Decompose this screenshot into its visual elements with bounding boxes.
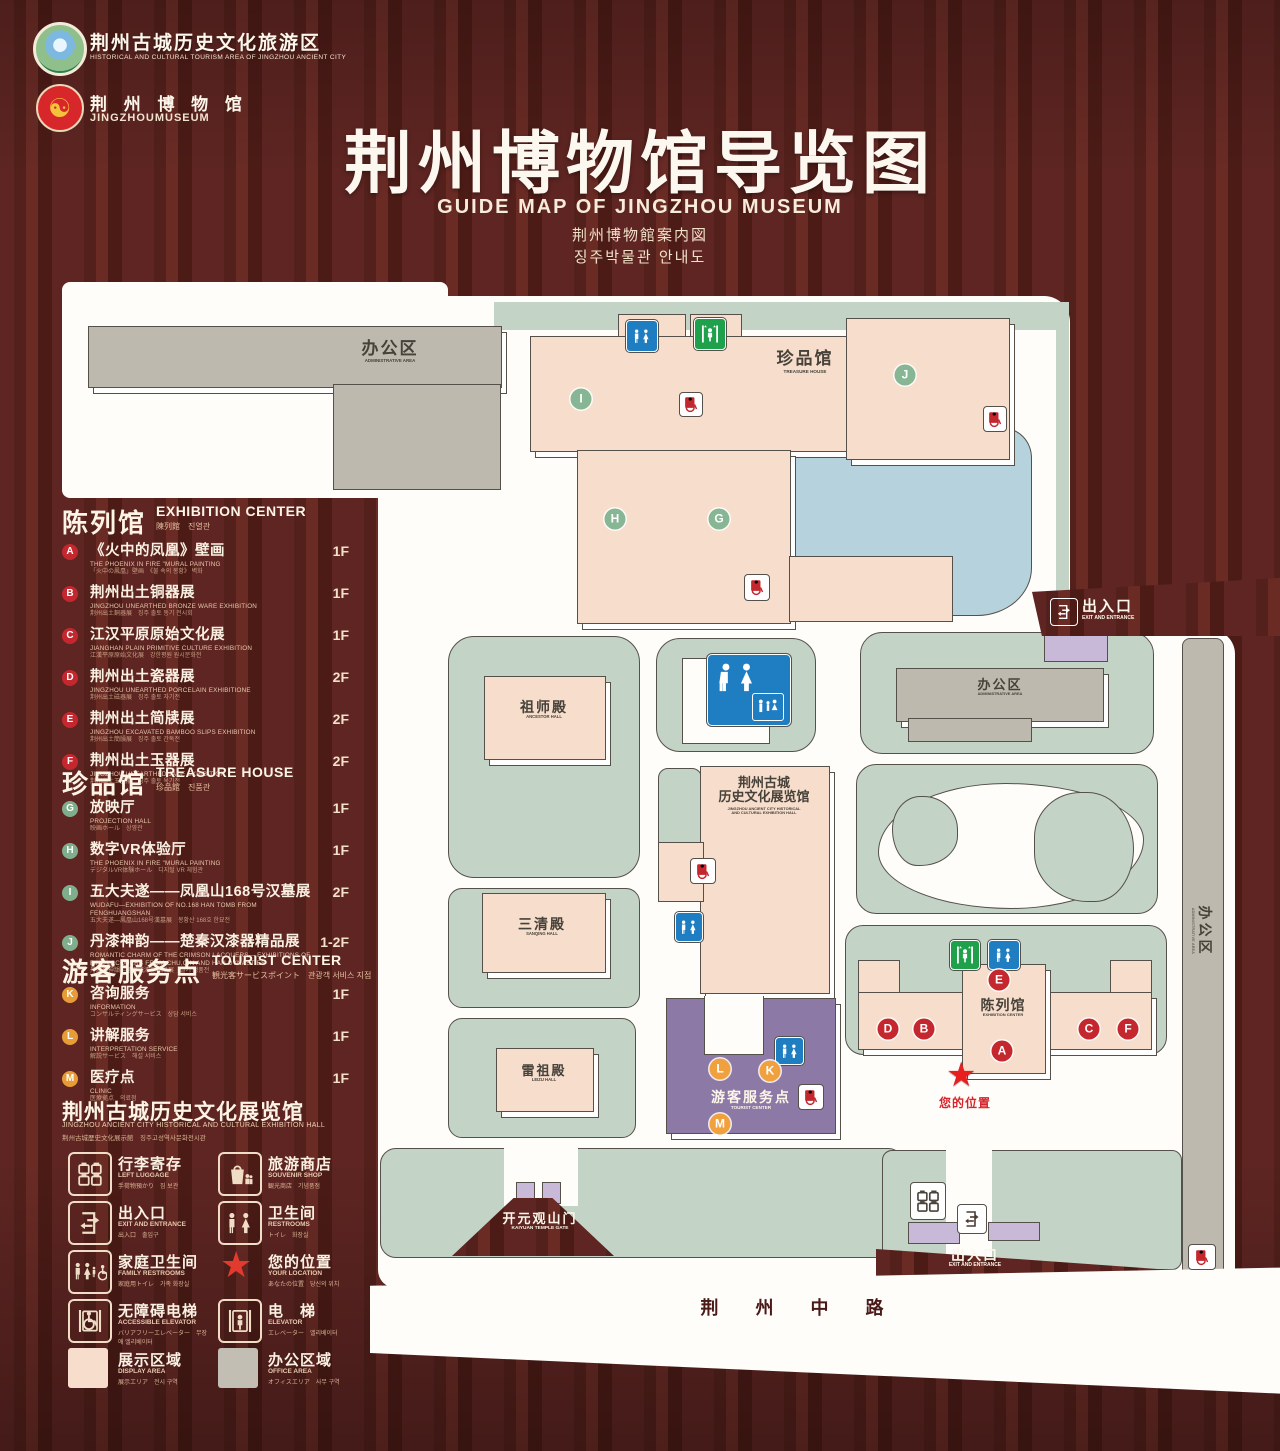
- item-title: 五大夫遂——凤凰山168号汉墓展: [90, 884, 319, 901]
- legend-access: 无障碍电梯ACCESSIBLE ELEVATORバリアフリーエレベーター 무장애…: [62, 1297, 212, 1346]
- item-badge: L: [62, 1029, 78, 1045]
- tourism-area-name-en: HISTORICAL AND CULTURAL TOURISM AREA OF …: [90, 54, 346, 61]
- map-marker-H: H: [605, 509, 626, 530]
- item-title: 丹漆神韵——楚秦汉漆器精品展: [90, 934, 319, 951]
- item-title-en: INFORMATION: [90, 1004, 319, 1012]
- legend-label-en: EXIT AND ENTRANCE: [118, 1221, 186, 1228]
- legend-label-sub: あなたの位置 당신의 위치: [268, 1279, 339, 1288]
- legend-label: 卫生间: [268, 1202, 316, 1223]
- map-marker-E: E: [989, 970, 1010, 991]
- item-floor: 1-2F: [320, 934, 349, 950]
- section-title-sub: 珍品館 진품관: [156, 782, 294, 793]
- item-title: 医疗点: [90, 1070, 319, 1087]
- exhibition-list: A1F《火中的凤凰》壁画THE PHOENIX IN FIRE "MURAL P…: [62, 543, 349, 795]
- admin-east-label: 办公区 ADMINISTRATIVE AREA: [940, 678, 1060, 697]
- lawn-hall-west: [658, 768, 702, 852]
- item-title-en: WUDAFU—EXHIBITION OF NO.168 HAN TOMB FRO…: [90, 902, 319, 918]
- map-marker-D: D: [878, 1019, 899, 1040]
- ne-exit-icon: [1050, 598, 1078, 626]
- item-floor: 2F: [333, 753, 349, 769]
- legend-label: 旅游商店: [268, 1153, 332, 1174]
- left-luggage-map-icon: [910, 1182, 946, 1220]
- sidebar-item-L: L1F讲解服务INTERPRETATION SERVICE解説サービス 해설 서…: [62, 1028, 349, 1061]
- road-label: 荆 州 中 路: [620, 1294, 980, 1320]
- map-marker-M: M: [710, 1114, 731, 1135]
- item-title: 荆州出土简牍展: [90, 711, 319, 728]
- ne-exit-label: 出入口 EXIT AND ENTRANCE: [1082, 599, 1162, 621]
- item-badge: G: [62, 801, 78, 817]
- section-tourist-center: 游客服务点 TOURIST CENTER 観光客サービスポイント 관광객 서비스…: [62, 952, 371, 989]
- item-title: 数字VR体验厅: [90, 842, 319, 859]
- item-floor: 2F: [333, 884, 349, 900]
- item-badge: D: [62, 670, 78, 686]
- section-title-zh: 珍品馆: [62, 764, 146, 801]
- item-badge: H: [62, 843, 78, 859]
- section-title-en: TREASURE HOUSE: [156, 764, 294, 780]
- section-title-sub: 観光客サービスポイント 관광객 서비스 지점: [212, 970, 371, 981]
- service-box-s2: [988, 1222, 1040, 1241]
- legend-label: 您的位置: [268, 1251, 332, 1272]
- sanqing-hall-label: 三清殿 SANQING HALL: [492, 917, 592, 937]
- item-title-en: INTERPRETATION SERVICE: [90, 1046, 319, 1054]
- item-title: 讲解服务: [90, 1028, 319, 1045]
- restroom-icon-tourist: [775, 1037, 804, 1065]
- section-title-en: TOURIST CENTER: [212, 952, 371, 968]
- legend-restroom: 卫生间RESTROOMSトイレ 화장실: [212, 1199, 362, 1248]
- restroom-icon-sanqing: [675, 912, 703, 942]
- tourism-area-name: 荆州古城历史文化旅游区: [90, 28, 321, 55]
- service-box-s1: [908, 1222, 960, 1244]
- section-treasure-house: 珍品馆 TREASURE HOUSE 珍品館 진품관: [62, 764, 294, 801]
- legend-label-en: OFFICE AREA: [268, 1368, 312, 1375]
- your-location-star-icon: ★: [946, 1060, 976, 1090]
- item-title-sub: コンサルティングサービス 상담 서비스: [90, 1012, 319, 1019]
- accessible-elevator-icon-5: [798, 1084, 824, 1110]
- admin-east-tab: [908, 718, 1032, 742]
- map-marker-B: B: [914, 1019, 935, 1040]
- legend-label-sub: 観光商店 기념품점: [268, 1181, 320, 1190]
- page-title-ko: 징주박물관 안내도: [0, 246, 1280, 267]
- item-floor: 1F: [333, 585, 349, 601]
- page-title-ja: 荆州博物館案内図: [0, 224, 1280, 245]
- item-floor: 1F: [333, 543, 349, 559]
- page-title-en: GUIDE MAP OF JINGZHOU MUSEUM: [0, 196, 1280, 219]
- sidebar-item-G: G1F放映厅PROJECTION HALL映画ホール 상영관: [62, 800, 349, 833]
- lawn-south-west: [380, 1148, 904, 1258]
- leizu-hall-label: 雷祖殿 LEIZU HALL: [494, 1064, 594, 1083]
- ancestor-hall-label: 祖师殿 ANCESTOR HALL: [494, 700, 594, 720]
- item-title-en: THE PHOENIX IN FIRE "MURAL PAINTING: [90, 860, 319, 868]
- item-title: 荆州出土铜器展: [90, 585, 319, 602]
- restroom-icon-treasure: [626, 320, 658, 352]
- legend-label-en: FAMILY RESTROOMS: [118, 1270, 185, 1277]
- sidebar-item-C: C1F江汉平原原始文化展JIANGHAN PLAIN PRIMITIVE CUL…: [62, 627, 349, 660]
- sidebar-item-D: D2F荆州出土瓷器展JINGZHOU UNEARTHED PORCELAIN E…: [62, 669, 349, 702]
- legend-label: 家庭卫生间: [118, 1251, 198, 1272]
- item-floor: 1F: [333, 800, 349, 816]
- item-title-sub: 荆州出土簡牘展 징주 출토 간독전: [90, 737, 319, 744]
- restroom-icon-exhibition: [988, 940, 1020, 970]
- legend-label-sub: 家庭用トイレ 가족 화장실: [118, 1279, 189, 1288]
- item-badge: C: [62, 628, 78, 644]
- admin-nw-south-block: [333, 384, 501, 490]
- office-strip-label-en: ADMINISTRATIVE AREA: [1191, 869, 1195, 993]
- sidebar-item-I: I2F五大夫遂——凤凰山168号汉墓展WUDAFU—EXHIBITION OF …: [62, 884, 349, 925]
- your-location-label: 您的位置: [920, 1094, 1010, 1111]
- legend-label: 展示区域: [118, 1349, 182, 1370]
- item-title-sub: 荆州出土銅器展 징주 출토 동기 전시회: [90, 611, 319, 618]
- accessible-elevator-icon-3: [744, 574, 770, 601]
- map-marker-J: J: [895, 365, 916, 386]
- guide-map-board: ☯ 荆州古城历史文化旅游区 HISTORICAL AND CULTURAL TO…: [0, 0, 1280, 1451]
- legend-label-en: ELEVATOR: [268, 1319, 302, 1326]
- legend-display: 展示区域DISPLAY AREA展示エリア 전시 구역: [62, 1346, 212, 1395]
- item-badge: A: [62, 544, 78, 560]
- lawn-east-edge: [1056, 302, 1069, 594]
- sidebar-item-H: H1F数字VR体验厅THE PHOENIX IN FIRE "MURAL PAI…: [62, 842, 349, 875]
- sidebar-item-E: E2F荆州出土简牍展JINGZHOU EXCAVATED BAMBOO SLIP…: [62, 711, 349, 744]
- map-marker-L: L: [710, 1059, 731, 1080]
- map-marker-G: G: [709, 509, 730, 530]
- tourist-center-notch: [704, 996, 764, 1055]
- legend-label-en: LEFT LUGGAGE: [118, 1172, 169, 1179]
- item-title: 咨询服务: [90, 986, 319, 1003]
- accessible-elevator-icon-4: [690, 858, 716, 884]
- item-badge: E: [62, 712, 78, 728]
- legend-elevator: 电 梯ELEVATORエレベーター 엘리베이터: [212, 1297, 362, 1346]
- hall-title-en: JINGZHOU ANCIENT CITY HISTORICAL AND CUL…: [62, 1122, 325, 1129]
- item-title-en: THE PHOENIX IN FIRE "MURAL PAINTING: [90, 561, 319, 569]
- item-title-en: JINGZHOU EXCAVATED BAMBOO SLIPS EXHIBITI…: [90, 729, 319, 737]
- hall-title-sub: 荆州古城歴史文化展示館 징주고성역사문화전시관: [62, 1132, 206, 1142]
- legend-label-sub: エレベーター 엘리베이터: [268, 1328, 338, 1337]
- item-floor: 2F: [333, 711, 349, 727]
- legend-office: 办公区域OFFICE AREAオフィスエリア 사무 구역: [212, 1346, 362, 1395]
- page-title: 荆州博物馆导览图: [0, 108, 1280, 207]
- item-floor: 1F: [333, 1070, 349, 1086]
- legend-label-sub: 手荷物預かり 짐 보관: [118, 1181, 178, 1190]
- legend-luggage: 行李寄存LEFT LUGGAGE手荷物預かり 짐 보관: [62, 1150, 212, 1199]
- item-title: 《火中的凤凰》壁画: [90, 543, 319, 560]
- restroom-figures-icon: [716, 663, 758, 698]
- treasure-house-label: 珍品馆 TREASURE HOUSE: [760, 350, 850, 374]
- legend-label: 行李寄存: [118, 1153, 182, 1174]
- family-restroom-icon: [752, 693, 784, 721]
- legend-label: 无障碍电梯: [118, 1300, 198, 1321]
- legend-label: 出入口: [118, 1202, 166, 1223]
- item-title-en: CLINIC: [90, 1088, 319, 1096]
- office-strip-label: 办公区: [1195, 869, 1215, 993]
- item-title: 荆州出土瓷器展: [90, 669, 319, 686]
- item-badge: K: [62, 987, 78, 1003]
- legend-grid: 行李寄存LEFT LUGGAGE手荷物預かり 짐 보관旅游商店SOUVENIR …: [62, 1150, 362, 1395]
- item-badge: B: [62, 586, 78, 602]
- accessible-elevator-icon-2: [983, 406, 1007, 432]
- admin-nw-label: 办公区 ADMINISTRATIVE AREA: [330, 340, 450, 364]
- sidebar-item-A: A1F《火中的凤凰》壁画THE PHOENIX IN FIRE "MURAL P…: [62, 543, 349, 576]
- item-title-en: PROJECTION HALL: [90, 818, 319, 826]
- garden-island-west: [892, 796, 958, 866]
- tourism-area-logo-icon: [33, 22, 87, 76]
- south-exit-icon: [957, 1204, 987, 1234]
- section-exhibition-center: 陈列馆 EXHIBITION CENTER 陳列館 진열관: [62, 503, 306, 540]
- item-title-sub: 解説サービス 해설 서비스: [90, 1054, 319, 1061]
- ancient-city-hall-label: 荆州古城 历史文化展览馆 JINGZHOU ANCIENT CITY HISTO…: [700, 776, 828, 815]
- elevator-icon-treasure: [694, 318, 726, 350]
- item-floor: 1F: [333, 842, 349, 858]
- item-title-en: JINGZHOU UNEARTHED BRONZE WARE EXHIBITIO…: [90, 603, 319, 611]
- exhibition-center-label: 陈列馆 EXHIBITION CENTER: [958, 998, 1048, 1018]
- treasure-house-south-step: [789, 556, 953, 622]
- legend-label-en: RESTROOMS: [268, 1221, 310, 1228]
- legend-label: 电 梯: [268, 1300, 316, 1321]
- section-title-zh: 陈列馆: [62, 503, 146, 540]
- kaiyuan-gate-label: 开元观山门 KAIYUAN TEMPLE GATE: [470, 1212, 610, 1232]
- item-title-sub: 江漢平原原始文化展 강한평원 원시문화전: [90, 653, 319, 660]
- item-title-sub: 荆州出土磁器展 징주 출토 자기전: [90, 695, 319, 702]
- item-badge: M: [62, 1071, 78, 1087]
- accessible-elevator-icon-6: [1188, 1244, 1216, 1270]
- section-title-zh: 游客服务点: [62, 952, 202, 989]
- sidebar-item-K: K1F咨询服务INFORMATIONコンサルティングサービス 상담 서비스: [62, 986, 349, 1019]
- legend-label-sub: バリアフリーエレベーター 무장애 엘리베이터: [118, 1328, 212, 1346]
- legend-label-en: ACCESSIBLE ELEVATOR: [118, 1319, 196, 1326]
- item-badge: J: [62, 935, 78, 951]
- elevator-icon-exhibition: [950, 940, 980, 970]
- legend-label-sub: 出入口 출입구: [118, 1230, 159, 1239]
- legend-family: 家庭卫生间FAMILY RESTROOMS家庭用トイレ 가족 화장실: [62, 1248, 212, 1297]
- item-title-en: JINGZHOU UNEARTHED PORCELAIN EXHIBITIONE: [90, 687, 319, 695]
- map-marker-C: C: [1079, 1019, 1100, 1040]
- sidebar-item-B: B1F荆州出土铜器展JINGZHOU UNEARTHED BRONZE WARE…: [62, 585, 349, 618]
- item-title-sub: 映画ホール 상영관: [90, 826, 319, 833]
- legend-label-sub: 展示エリア 전시 구역: [118, 1377, 178, 1386]
- legend-label-en: YOUR LOCATION: [268, 1270, 322, 1277]
- exhibition-center-west-bar: [858, 992, 966, 1050]
- item-title: 江汉平原原始文化展: [90, 627, 319, 644]
- item-title-en: JIANGHAN PLAIN PRIMITIVE CULTURE EXHIBIT…: [90, 645, 319, 653]
- legend-exit: 出入口EXIT AND ENTRANCE出入口 출입구: [62, 1199, 212, 1248]
- tourist-list: K1F咨询服务INFORMATIONコンサルティングサービス 상담 서비스L1F…: [62, 986, 349, 1112]
- legend-label-sub: トイレ 화장실: [268, 1230, 309, 1239]
- item-title-sub: 五大夫遂—鳳凰山168号漢墓展 봉황산 168호 한묘전: [90, 918, 319, 925]
- legend-shop: 旅游商店SOUVENIR SHOP観光商店 기념품점: [212, 1150, 362, 1199]
- accessible-elevator-icon-1: [679, 392, 703, 417]
- legend-label-sub: オフィスエリア 사무 구역: [268, 1377, 340, 1386]
- restroom-icon-large: [707, 654, 791, 726]
- legend-label: 办公区域: [268, 1349, 332, 1370]
- legend-label-en: DISPLAY AREA: [118, 1368, 165, 1375]
- item-title-sub: デジタルVR体験ホール 디지털 VR 체험관: [90, 868, 319, 875]
- map-marker-I: I: [571, 389, 592, 410]
- item-title: 放映厅: [90, 800, 319, 817]
- treasure-house-east-wing: [846, 318, 1010, 460]
- item-title-sub: 「火中の鳳凰」壁画 《불 속의 봉황》 벽화: [90, 569, 319, 576]
- map-marker-K: K: [760, 1061, 781, 1082]
- section-title-sub: 陳列館 진열관: [156, 521, 306, 532]
- legend-label-en: SOUVENIR SHOP: [268, 1172, 322, 1179]
- item-floor: 1F: [333, 627, 349, 643]
- item-floor: 1F: [333, 1028, 349, 1044]
- map-marker-A: A: [992, 1041, 1013, 1062]
- office-strip-east: 办公区 ADMINISTRATIVE AREA: [1182, 638, 1224, 1276]
- item-badge: I: [62, 885, 78, 901]
- legend-star: ★您的位置YOUR LOCATIONあなたの位置 당신의 위치: [212, 1248, 362, 1297]
- item-floor: 2F: [333, 669, 349, 685]
- garden-island-east: [1034, 792, 1134, 902]
- south-exit-label: 出入口 EXIT AND ENTRANCE: [920, 1248, 1030, 1269]
- section-title-en: EXHIBITION CENTER: [156, 503, 306, 519]
- map-marker-F: F: [1118, 1019, 1139, 1040]
- item-floor: 1F: [333, 986, 349, 1002]
